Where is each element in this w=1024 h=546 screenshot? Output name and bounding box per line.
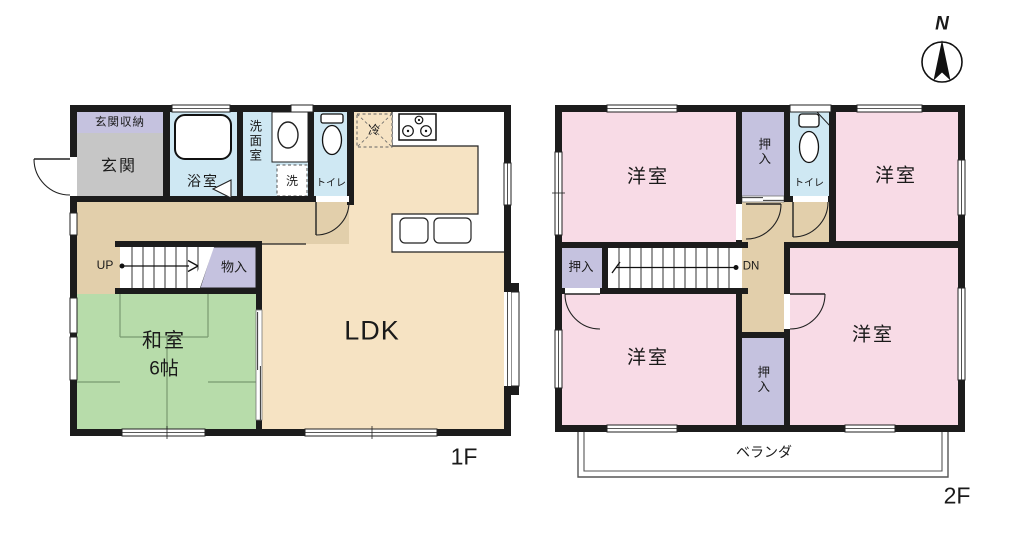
label-entrance-storage: 玄関収納 — [95, 117, 145, 129]
label-washroom: 洗面室 — [248, 119, 261, 163]
label-storage: 物入 — [221, 261, 247, 274]
f1-kitchen-sink-right — [434, 218, 471, 243]
label-japanese-room-size: 6帖 — [149, 360, 179, 379]
bathtub-icon — [175, 115, 231, 159]
label-stairs-up: UP — [97, 259, 114, 271]
label-western-room-tl: 洋室 — [627, 168, 669, 187]
label-closet-top: 押入 — [757, 138, 770, 167]
washstand-icon — [272, 112, 308, 162]
label-veranda: ベランダ — [736, 445, 792, 459]
label-japanese-room: 和室 — [142, 331, 186, 351]
label-western-room-bl: 洋室 — [627, 349, 669, 368]
f1-sliding-door — [256, 310, 262, 420]
f1-kitchen-sink-left — [400, 218, 428, 243]
floor-plan-graphic — [0, 0, 1024, 546]
f1-kitchen-floor-notch — [392, 146, 478, 214]
floor-plan-page: 玄関収納 玄関 浴室 洗面室 洗 トイレ 冷 UP 物入 和室 6帖 LDK 1… — [0, 0, 1024, 546]
label-bathroom: 浴室 — [187, 174, 219, 188]
label-closet-bottom: 押入 — [756, 366, 769, 395]
label-toilet-2f: トイレ — [794, 179, 824, 189]
label-closet-mid: 押入 — [568, 261, 593, 274]
label-floor1: 1F — [451, 446, 478, 469]
label-fridge: 冷 — [368, 124, 380, 136]
label-stairs-down: DN — [743, 261, 760, 273]
label-compass-north: N — [935, 15, 949, 34]
label-western-room-br: 洋室 — [852, 326, 894, 345]
stove-icon — [399, 114, 436, 140]
f2-closet-top-sliding — [742, 196, 784, 202]
compass-icon — [922, 40, 962, 82]
label-entrance: 玄関 — [101, 159, 137, 175]
stairs-2f — [608, 248, 742, 288]
entrance-door — [34, 157, 77, 196]
label-western-room-tr: 洋室 — [875, 167, 917, 186]
toilet-icon-2f — [799, 114, 819, 163]
label-laundry: 洗 — [286, 175, 298, 187]
label-ldk: LDK — [344, 318, 400, 345]
floor1-plan — [34, 105, 519, 439]
toilet-icon-1f — [321, 114, 343, 155]
label-toilet-1f: トイレ — [316, 179, 346, 189]
label-floor2: 2F — [944, 485, 971, 508]
f1-hallway-floor — [77, 202, 349, 244]
